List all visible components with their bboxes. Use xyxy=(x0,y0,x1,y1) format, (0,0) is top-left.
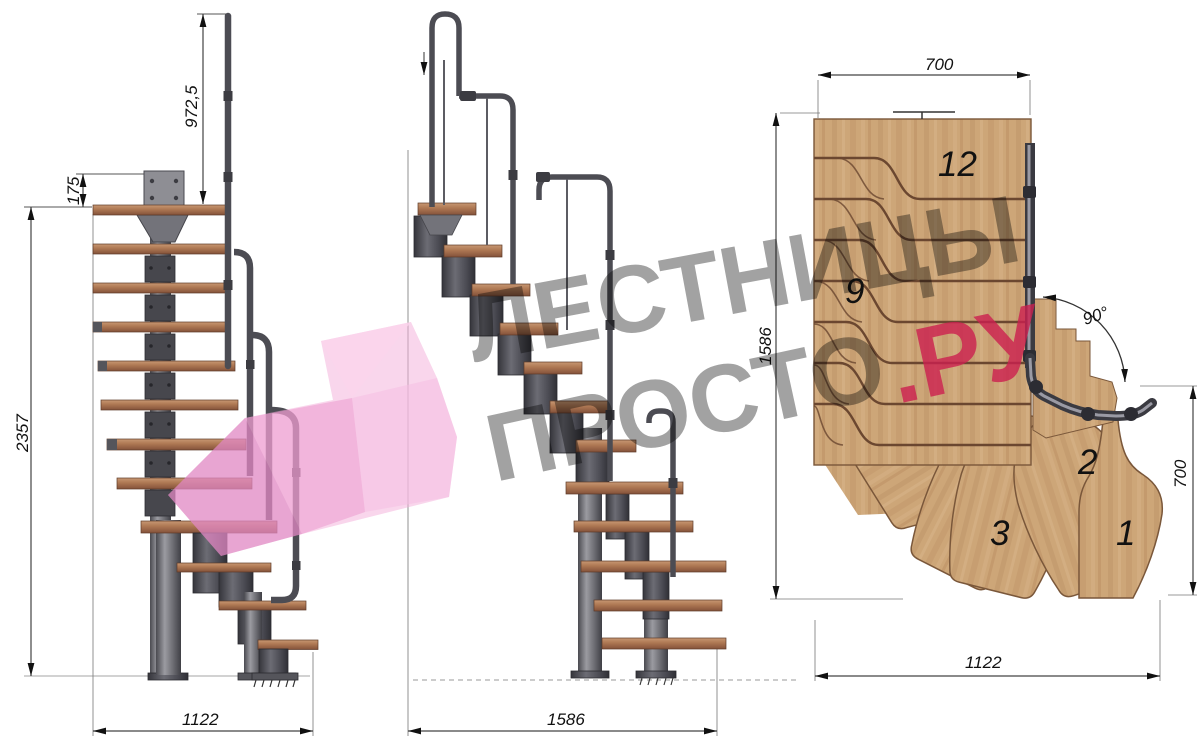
svg-text:700: 700 xyxy=(925,55,954,74)
svg-text:1122: 1122 xyxy=(182,710,219,729)
svg-text:1586: 1586 xyxy=(547,710,585,729)
svg-text:12: 12 xyxy=(938,145,977,184)
svg-text:3: 3 xyxy=(990,514,1010,553)
svg-text:972,5: 972,5 xyxy=(182,85,201,128)
svg-text:2357: 2357 xyxy=(13,414,32,453)
svg-text:1: 1 xyxy=(1116,514,1135,553)
svg-text:90°: 90° xyxy=(1080,303,1111,329)
svg-text:1122: 1122 xyxy=(965,653,1002,672)
svg-text:175: 175 xyxy=(64,176,83,205)
svg-text:2: 2 xyxy=(1077,443,1097,482)
svg-text:700: 700 xyxy=(1171,459,1190,488)
